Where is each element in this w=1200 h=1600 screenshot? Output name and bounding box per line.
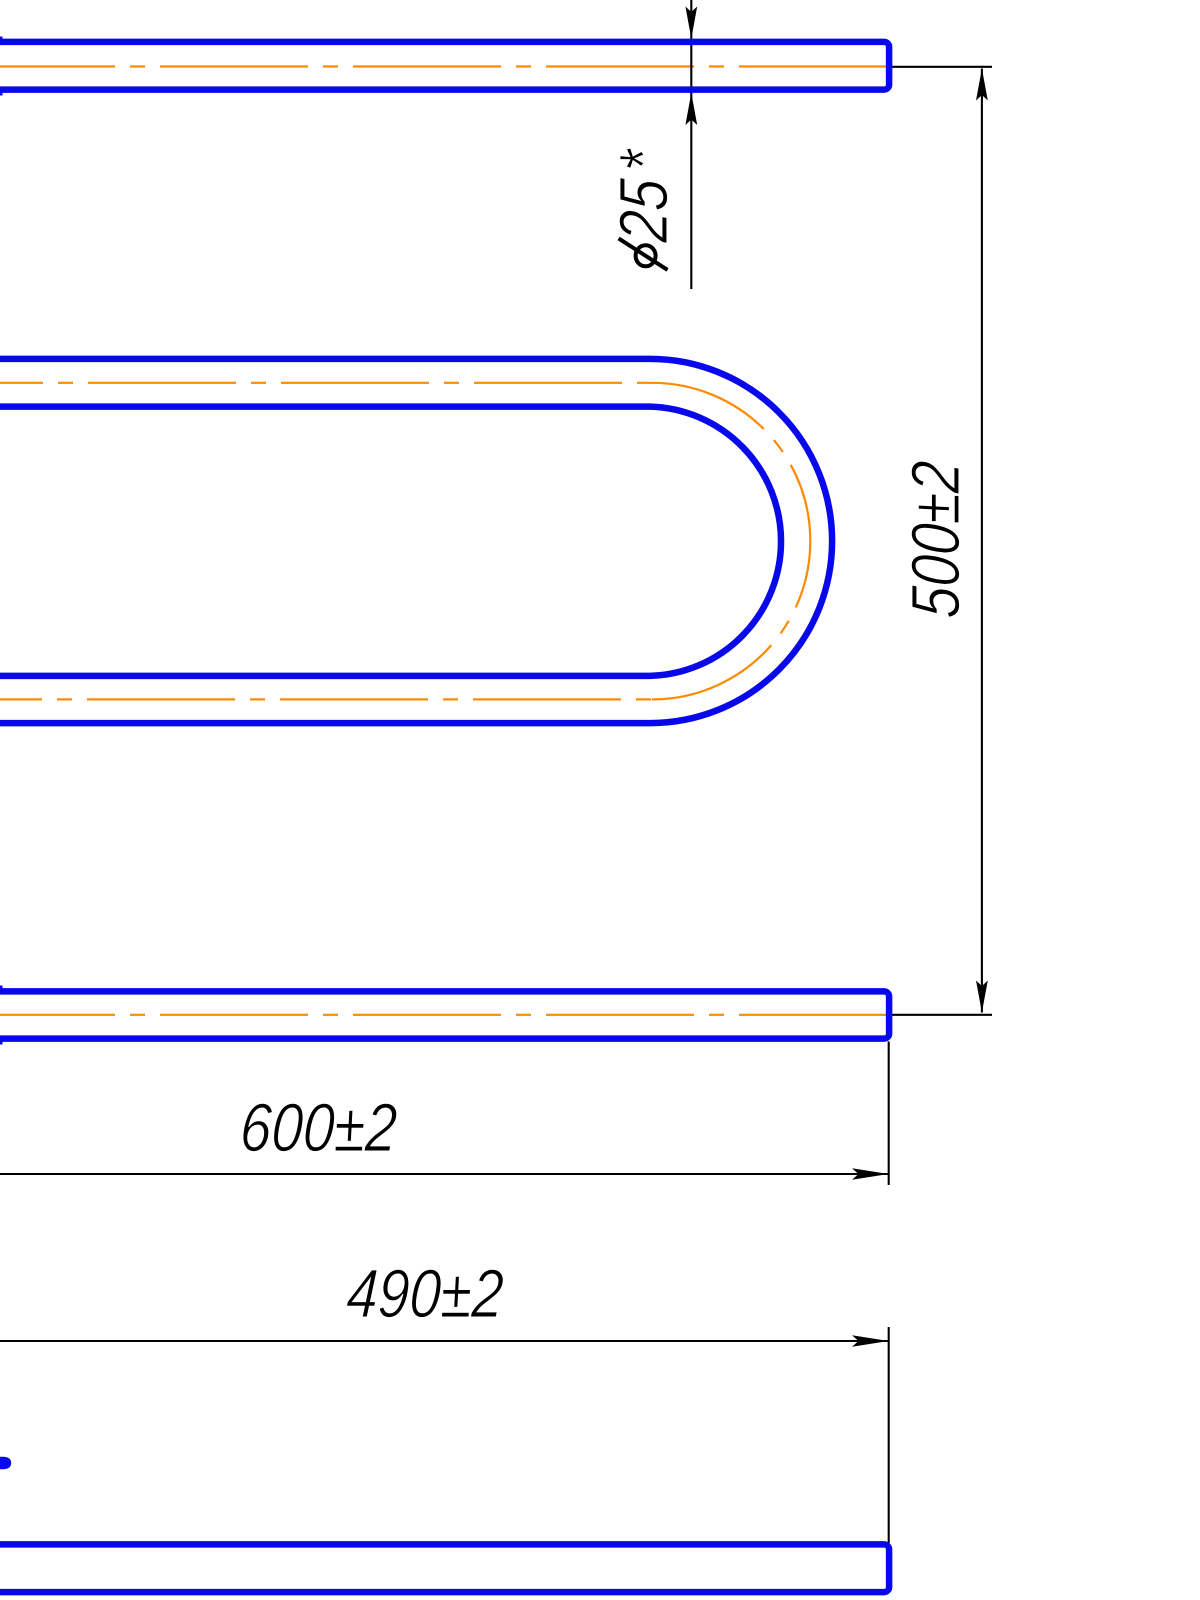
svg-text:500±2: 500±2 [898, 459, 974, 620]
svg-text:25*: 25* [606, 146, 682, 245]
svg-text:600±2: 600±2 [238, 1090, 399, 1166]
svg-text:490±2: 490±2 [345, 1256, 506, 1332]
